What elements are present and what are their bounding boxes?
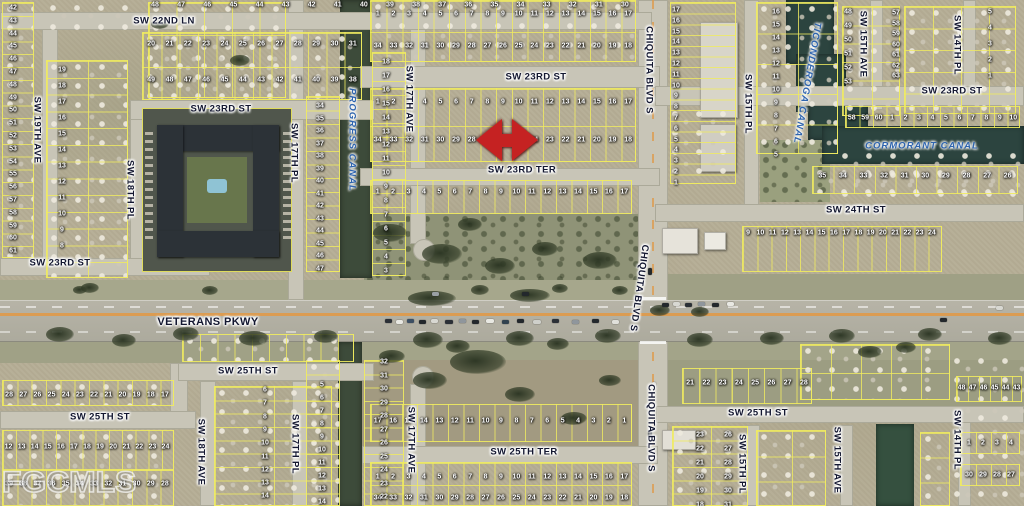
- lot-number: 48: [151, 2, 159, 9]
- lot-number: 9: [499, 418, 503, 425]
- lot-number: 48: [844, 9, 852, 16]
- lot-number: 2: [391, 189, 395, 196]
- vehicle: [517, 319, 524, 323]
- vehicle: [385, 319, 392, 323]
- lot-number: 22: [562, 137, 570, 144]
- lot-number: 3: [407, 474, 411, 481]
- lot-number: 45: [9, 43, 17, 50]
- condo-pool: [207, 179, 227, 193]
- lot-number: 33: [543, 2, 551, 9]
- lot-number: 1: [376, 189, 380, 196]
- lot-number: 4: [576, 418, 580, 425]
- lot-number: 1: [376, 99, 380, 106]
- lot-number: 11: [58, 195, 65, 202]
- lot-number: 11: [769, 230, 776, 237]
- lot-number: 45: [229, 2, 237, 9]
- lot-number: 62: [892, 62, 900, 69]
- vehicle: [552, 319, 559, 323]
- lot-number: 32: [405, 495, 413, 502]
- lot-number: 34: [374, 137, 382, 144]
- condo-parking: [145, 129, 153, 239]
- lot-number: 19: [58, 67, 66, 74]
- lot-number: 9: [263, 426, 267, 433]
- lot-number: 18: [147, 392, 155, 399]
- parcel-block: [920, 432, 950, 506]
- lot-number: 21: [577, 137, 585, 144]
- tree: [413, 332, 443, 348]
- lot-number: 7: [774, 126, 778, 133]
- parcel-block: [812, 166, 1018, 194]
- lot-number: 56: [9, 184, 17, 191]
- lot-number: 28: [800, 380, 808, 387]
- lot-number: 53: [9, 145, 17, 152]
- lot-number: 23: [546, 43, 554, 50]
- lot-number: 51: [844, 51, 852, 58]
- lot-number: 5: [438, 11, 442, 18]
- tree: [506, 331, 534, 346]
- lot-number: 26: [499, 43, 507, 50]
- lot-number: 31: [595, 2, 603, 9]
- lot-number: 4: [423, 99, 427, 106]
- lot-number: 10: [756, 230, 764, 237]
- lot-number: 29: [942, 173, 950, 180]
- lot-number: 28: [294, 41, 302, 48]
- lot-number: 23: [916, 230, 924, 237]
- lot-number: 38: [316, 153, 324, 160]
- lot-number: 6: [454, 11, 458, 18]
- lot-number: 32: [405, 43, 413, 50]
- lot-number: 11: [261, 453, 268, 460]
- lot-number: 31: [380, 372, 388, 379]
- vehicle: [712, 303, 719, 307]
- vehicle: [419, 320, 426, 324]
- lot-number: 29: [452, 43, 460, 50]
- lot-number: 43: [257, 77, 265, 84]
- lot-number: 21: [166, 41, 174, 48]
- lot-number: 47: [177, 2, 185, 9]
- street-label: SW 22ND LN: [133, 16, 195, 27]
- street-label: SW 25TH ST: [218, 366, 278, 377]
- lot-number: 50: [844, 37, 852, 44]
- lot-number: 20: [879, 230, 887, 237]
- tree: [505, 387, 535, 402]
- lot-number: 23: [546, 137, 554, 144]
- lot-number: 20: [109, 444, 117, 451]
- lot-number: 15: [672, 28, 680, 35]
- lot-number: 26: [257, 41, 265, 48]
- lot-number: 23: [76, 392, 84, 399]
- lot-number: 31: [901, 173, 909, 180]
- street-label: SW 14TH PL: [952, 15, 963, 75]
- lot-number: 34: [517, 2, 525, 9]
- lot-number: 7: [320, 408, 324, 415]
- lot-number: 16: [609, 99, 617, 106]
- vehicle: [698, 302, 705, 306]
- lot-number: 12: [543, 189, 551, 196]
- lot-number: 5: [674, 136, 678, 143]
- lot-number: 47: [969, 385, 977, 392]
- lot-number: 12: [5, 444, 13, 451]
- lot-number: 3: [995, 440, 999, 447]
- lot-number: 14: [58, 147, 66, 154]
- parcel-block: [370, 180, 632, 214]
- lot-number: 11: [466, 418, 473, 425]
- street-label: SW 17TH AVE: [404, 66, 415, 133]
- lot-number: 39: [386, 2, 394, 9]
- lot-number: 4: [988, 25, 992, 32]
- lot-number: 35: [818, 173, 826, 180]
- lot-number: 26: [1004, 173, 1012, 180]
- lot-number: 16: [389, 418, 397, 425]
- lot-number: 33: [389, 495, 397, 502]
- lot-number: 1: [988, 73, 992, 80]
- street-label: SW 25TH TER: [490, 447, 557, 458]
- lot-number: 20: [593, 43, 601, 50]
- lot-number: 8: [485, 11, 489, 18]
- lot-number: 1: [376, 11, 380, 18]
- street-label: CHIQUITA BLVD S: [646, 384, 657, 472]
- lot-number: 16: [830, 230, 838, 237]
- vehicle: [522, 292, 529, 296]
- lot-number: 47: [316, 265, 324, 272]
- lot-number: 11: [528, 474, 535, 481]
- lot-number: 26: [724, 432, 732, 439]
- lot-number: 2: [904, 115, 908, 122]
- lot-number: 14: [672, 39, 680, 46]
- lot-number: 28: [380, 413, 388, 420]
- lot-number: 51: [9, 120, 17, 127]
- lot-number: 22: [90, 392, 98, 399]
- lot-number: 13: [261, 480, 269, 487]
- lot-number: 32: [405, 137, 413, 144]
- satellite-parcel-map[interactable]: 4847464544434241403938373635343332313020…: [0, 0, 1024, 506]
- lot-number: 27: [483, 43, 491, 50]
- lot-number: 55: [9, 171, 17, 178]
- lot-number: 23: [202, 41, 210, 48]
- lot-number: 9: [384, 184, 388, 191]
- lot-number: 52: [9, 133, 17, 140]
- tree: [561, 412, 587, 425]
- lot-number: 10: [513, 474, 521, 481]
- lot-number: 61: [9, 248, 17, 255]
- lot-number: 17: [161, 392, 169, 399]
- lot-number: 14: [574, 474, 582, 481]
- lot-number: 4: [423, 11, 427, 18]
- lot-number: 18: [624, 43, 632, 50]
- vehicle: [612, 320, 619, 324]
- lot-number: 18: [382, 59, 390, 66]
- lot-number: 21: [696, 460, 704, 467]
- lot-number: 10: [515, 99, 523, 106]
- lot-number: 11: [531, 99, 538, 106]
- tree: [485, 258, 515, 274]
- lot-number: 63: [892, 73, 900, 80]
- lot-number: 8: [514, 418, 518, 425]
- lot-number: 13: [559, 189, 567, 196]
- lot-number: 9: [501, 11, 505, 18]
- lot-number: 21: [122, 444, 130, 451]
- lot-number: 22: [562, 43, 570, 50]
- street-label: SW 24TH ST: [826, 205, 886, 216]
- lot-number: 20: [593, 137, 601, 144]
- vehicle: [662, 303, 669, 307]
- lot-number: 27: [983, 173, 991, 180]
- lot-number: 40: [316, 178, 324, 185]
- lot-number: 13: [772, 48, 780, 55]
- lot-number: 10: [261, 440, 269, 447]
- vehicle: [431, 319, 438, 323]
- lot-number: 5: [437, 189, 441, 196]
- lot-number: 9: [320, 434, 324, 441]
- tree: [858, 346, 882, 358]
- lot-number: 41: [294, 77, 302, 84]
- vehicle: [459, 319, 466, 323]
- subject-property-double-arrow-marker: [476, 118, 538, 163]
- tree: [173, 327, 199, 341]
- tree: [112, 334, 136, 347]
- street-label: SW 18TH PL: [125, 160, 136, 220]
- lot-number: 33: [390, 43, 398, 50]
- lot-number: 22: [696, 446, 704, 453]
- lot-number: 42: [9, 5, 17, 12]
- lot-number: 31: [349, 41, 357, 48]
- lot-number: 15: [818, 230, 826, 237]
- lot-number: 7: [468, 474, 472, 481]
- lot-number: 26: [34, 392, 42, 399]
- lot-number: 9: [499, 474, 503, 481]
- vehicle: [940, 318, 947, 322]
- vehicle: [432, 292, 439, 296]
- lot-number: 12: [543, 474, 551, 481]
- lot-number: 52: [844, 65, 852, 72]
- lot-number: 61: [892, 52, 900, 59]
- lot-number: 29: [979, 472, 987, 479]
- tree: [458, 218, 482, 231]
- lot-number: 7: [384, 211, 388, 218]
- lot-number: 29: [147, 481, 155, 488]
- lot-number: 10: [513, 189, 521, 196]
- mls-watermark: FGCMLS: [2, 466, 136, 500]
- street-label: SW 18TH AVE: [196, 419, 207, 486]
- lot-number: 19: [133, 392, 141, 399]
- lot-number: 34: [374, 43, 382, 50]
- lot-number: 16: [57, 444, 65, 451]
- lot-number: 7: [971, 115, 975, 122]
- lot-number: 27: [380, 426, 388, 433]
- lot-number: 22: [559, 495, 567, 502]
- lot-number: 2: [607, 418, 611, 425]
- lot-number: 15: [590, 189, 598, 196]
- lot-number: 11: [672, 71, 679, 78]
- lot-number: 21: [686, 380, 694, 387]
- lot-number: 9: [746, 230, 750, 237]
- lot-number: 8: [485, 99, 489, 106]
- lot-number: 4: [931, 115, 935, 122]
- tree: [422, 244, 462, 264]
- lot-number: 28: [993, 472, 1001, 479]
- lot-number: 28: [468, 137, 476, 144]
- lot-number: 22: [135, 444, 143, 451]
- lot-number: 42: [308, 2, 316, 9]
- road-segment-horizontal: [656, 406, 1024, 423]
- vehicle: [445, 320, 453, 324]
- building: [704, 232, 726, 250]
- lot-number: 46: [980, 385, 988, 392]
- lot-number: 35: [491, 2, 499, 9]
- lot-number: 10: [1009, 115, 1017, 122]
- lot-number: 6: [957, 115, 961, 122]
- vehicle: [486, 319, 494, 323]
- lot-number: 19: [609, 43, 617, 50]
- street-label: SW 25TH ST: [70, 412, 130, 423]
- lot-number: 17: [382, 72, 390, 79]
- canal-label: PROGRESS CANAL: [347, 88, 358, 192]
- street-label: SW 23RD ST: [190, 104, 251, 115]
- lot-number: 15: [44, 444, 52, 451]
- lot-number: 21: [891, 230, 899, 237]
- lot-number: 27: [784, 380, 792, 387]
- lot-number: 12: [546, 11, 554, 18]
- lot-number: 40: [360, 2, 368, 9]
- lot-number: 42: [276, 77, 284, 84]
- intersection-stop-bar-south: [640, 341, 666, 344]
- lot-number: 35: [316, 115, 324, 122]
- lot-number: 14: [31, 444, 39, 451]
- lot-number: 48: [9, 81, 17, 88]
- lot-number: 10: [515, 11, 523, 18]
- lot-number: 30: [965, 472, 973, 479]
- tree: [760, 332, 784, 345]
- lot-number: 26: [767, 380, 775, 387]
- lot-number: 30: [621, 2, 629, 9]
- lot-number: 46: [9, 56, 17, 63]
- street-label: SW 23RD ST: [921, 86, 982, 97]
- street-label: SW 17TH PL: [289, 123, 300, 183]
- tree: [46, 327, 74, 342]
- lot-number: 30: [437, 43, 445, 50]
- lot-number: 3: [407, 11, 411, 18]
- lot-number: 16: [605, 189, 613, 196]
- lot-number: 58: [9, 209, 17, 216]
- lot-number: 32: [380, 359, 388, 366]
- lot-number: 16: [772, 9, 780, 16]
- lot-number: 24: [380, 467, 388, 474]
- street-label: VETERANS PKWY: [157, 316, 258, 328]
- tree: [413, 372, 447, 389]
- street-label: SW 14TH PL: [952, 410, 963, 470]
- street-label: SW 19TH AVE: [32, 97, 43, 164]
- right-arrowhead-icon: [512, 119, 538, 161]
- lot-number: 13: [562, 11, 570, 18]
- lot-number: 13: [672, 50, 680, 57]
- lot-number: 5: [438, 99, 442, 106]
- lot-number: 3: [988, 41, 992, 48]
- lot-number: 27: [724, 446, 732, 453]
- lot-number: 34: [316, 103, 324, 110]
- lot-number: 14: [577, 11, 585, 18]
- lot-number: 24: [62, 392, 70, 399]
- lot-number: 18: [58, 83, 66, 90]
- street-label: SW 23RD TER: [488, 165, 556, 176]
- lot-number: 23: [719, 380, 727, 387]
- lot-number: 54: [9, 158, 17, 165]
- lot-number: 37: [316, 140, 324, 147]
- tree: [450, 350, 506, 374]
- lot-number: 6: [453, 189, 457, 196]
- lot-number: 38: [412, 2, 420, 9]
- lot-number: 23: [543, 495, 551, 502]
- lot-number: 19: [605, 495, 613, 502]
- lot-number: 27: [482, 495, 490, 502]
- tree: [687, 333, 713, 347]
- lot-number: 44: [1002, 385, 1010, 392]
- lot-number: 9: [674, 93, 678, 100]
- lot-number: 17: [624, 11, 632, 18]
- lot-number: 3: [592, 418, 596, 425]
- lot-number: 20: [147, 41, 155, 48]
- tree: [691, 307, 709, 317]
- lot-number: 11: [382, 156, 389, 163]
- lot-number: 5: [944, 115, 948, 122]
- lot-number: 45: [316, 240, 324, 247]
- lot-number: 37: [438, 2, 446, 9]
- lot-number: 30: [921, 173, 929, 180]
- lot-number: 44: [316, 228, 324, 235]
- tree: [552, 284, 568, 293]
- lot-number: 8: [984, 115, 988, 122]
- lot-number: 39: [331, 77, 339, 84]
- lot-number: 24: [735, 380, 743, 387]
- vehicle: [996, 306, 1003, 310]
- lot-number: 11: [528, 189, 535, 196]
- tree: [510, 289, 550, 302]
- lot-number: 1: [967, 440, 971, 447]
- lot-number: 15: [382, 100, 390, 107]
- lot-number: 1: [622, 418, 626, 425]
- lot-number: 31: [421, 137, 429, 144]
- lot-number: 24: [528, 495, 536, 502]
- lot-number: 28: [724, 460, 732, 467]
- lot-number: 14: [420, 418, 428, 425]
- lot-number: 8: [774, 113, 778, 120]
- lot-number: 14: [805, 230, 813, 237]
- street-label: SW 15TH AVE: [858, 11, 869, 78]
- lot-number: 27: [1007, 472, 1015, 479]
- lot-number: 32: [569, 2, 577, 9]
- lot-number: 13: [435, 418, 443, 425]
- lot-number: 36: [316, 128, 324, 135]
- lot-number: 44: [256, 2, 264, 9]
- terrain-patch: [668, 274, 1024, 300]
- canal-label: CORMORANT CANAL: [865, 141, 979, 152]
- lot-number: 44: [9, 30, 17, 37]
- lot-number: 2: [981, 440, 985, 447]
- lot-number: 12: [672, 61, 680, 68]
- lot-number: 3: [674, 158, 678, 165]
- lot-number: 28: [5, 392, 13, 399]
- lot-number: 14: [577, 99, 585, 106]
- lot-number: 6: [774, 139, 778, 146]
- lot-number: 12: [781, 230, 789, 237]
- lot-number: 8: [484, 189, 488, 196]
- lot-number: 12: [382, 142, 390, 149]
- lot-number: 8: [263, 413, 267, 420]
- lot-number: 44: [239, 77, 247, 84]
- lot-number: 30: [331, 41, 339, 48]
- lot-number: 1: [376, 474, 380, 481]
- lot-number: 18: [854, 230, 862, 237]
- lot-number: 60: [9, 235, 17, 242]
